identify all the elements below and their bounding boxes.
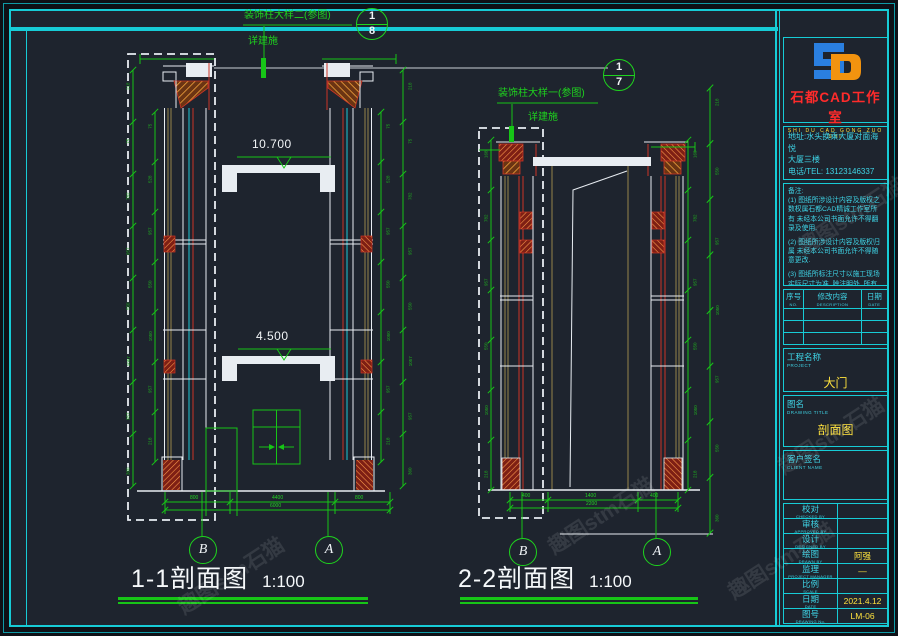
level-label-lower: 4.500	[256, 329, 289, 343]
dim-s2-mid: 1400	[585, 493, 596, 499]
drawing-label-en: DRAWING TITLE	[784, 410, 887, 415]
grid-bubble-a-s1: A	[315, 536, 343, 564]
notes-title: 备注:	[788, 187, 883, 196]
revision-header-cell: 修改内容DESCRIPTION	[804, 290, 862, 308]
dim-s1-mid: 4400	[272, 495, 283, 501]
drawing-label-zh: 图名	[784, 396, 887, 410]
signature-table: 校对CHECKED BY 审核APPROVED BY 设计DESIGNED BY…	[783, 503, 888, 624]
cad-linework	[0, 0, 898, 636]
section-2-underline2	[460, 602, 698, 604]
note-item: (2) 图纸所涉设计内容及版权归属 未经本公司书面允许不得随意更改.	[788, 238, 883, 266]
dim-chain-labels: 218757829575501057957360	[124, 84, 133, 474]
note-item: (3) 图纸所标注尺寸以施工现场实际尺寸为准, 除注明外, 所有尺寸均以毫米单位…	[788, 270, 883, 286]
titleblock-address-box: 地址:水头换乘大厦对面海悦 大厦三楼 电话/TEL: 13123146337	[783, 126, 888, 180]
drawing-title-value: 剖面图	[784, 421, 887, 438]
dim-chain-labels: 218757829575501057957360	[406, 84, 415, 474]
section-2-title: 2-2剖面图1:100	[458, 559, 632, 595]
detail-bubble-1-8: 1 8	[356, 8, 388, 40]
callout-1-sub: 详建施	[248, 32, 278, 47]
signature-row: 设计DESIGNED BY	[784, 534, 887, 549]
drawing-title-box: 图名 DRAWING TITLE 剖面图	[783, 395, 888, 447]
callout-2-sub: 详建施	[528, 108, 558, 123]
dim-chain-labels: 755289575501050957218	[384, 124, 393, 444]
client-label-en: CLIENT NAME	[784, 465, 887, 470]
revision-empty-row	[784, 333, 887, 344]
signature-row: 监理PROJECT MANAGER —	[784, 564, 887, 579]
dim-s1-right: 800	[355, 495, 363, 501]
phone-line: 电话/TEL: 13123146337	[788, 166, 883, 178]
callout-2-label: 装饰柱大样一(参图)	[498, 84, 585, 99]
dim-chain-labels: 755289575501050957218	[146, 124, 155, 444]
revision-header-row: 序号NO.修改内容DESCRIPTION日期DATE	[784, 290, 887, 309]
project-value: 大门	[784, 374, 887, 391]
signature-row: 比例SCALE	[784, 579, 887, 594]
callout-1-label: 装饰柱大样二(参图)	[244, 6, 331, 21]
note-item: (1) 图纸所涉设计内容及版权之数权属石都CAD精诚工作室所有 未经本公司书面允…	[788, 196, 883, 233]
dim-s2-right: 400	[650, 493, 658, 499]
section-1-title: 1-1剖面图1:100	[131, 559, 305, 595]
dim-s2-left: 400	[522, 493, 530, 499]
section-2-underline	[460, 597, 698, 600]
revision-header-cell: 日期DATE	[862, 290, 887, 308]
project-label-zh: 工程名称	[784, 349, 887, 363]
level-label-upper: 10.700	[252, 137, 292, 151]
project-name-box: 工程名称 PROJECT 大门	[783, 348, 888, 392]
dim-chain-labels: 1687829575501050218	[482, 152, 491, 477]
detail-bubble-1-7: 1 7	[603, 59, 635, 91]
notes-list: (1) 图纸所涉设计内容及版权之数权属石都CAD精诚工作室所有 未经本公司书面允…	[788, 196, 883, 286]
signature-row: 绘图DRAWN BY 阿强	[784, 549, 887, 564]
revision-empty-row	[784, 321, 887, 333]
revision-header-cell: 序号NO.	[784, 290, 804, 308]
signature-row: 校对CHECKED BY	[784, 504, 887, 519]
titleblock-logo-box: 石都CAD工作室 SHI DU CAD GONG ZUO SHI	[783, 37, 888, 123]
project-label-en: PROJECT	[784, 363, 887, 368]
revision-empty-row	[784, 309, 887, 321]
dim-s1-left: 800	[190, 495, 198, 501]
section-1-underline2	[118, 602, 368, 604]
signature-row: 图号DRAWING No. LM-06	[784, 609, 887, 624]
cad-sheet: 装饰柱大样二(参图) 详建施 1 8 装饰柱大样一(参图) 详建施 1 7 10…	[0, 0, 898, 636]
grid-bubble-a-s2: A	[643, 538, 671, 566]
section-1-underline	[118, 597, 368, 600]
client-label-zh: 客户签名	[784, 451, 887, 465]
dim-chain-labels: 1687829575501050218	[691, 152, 700, 477]
revision-table: 序号NO.修改内容DESCRIPTION日期DATE	[783, 289, 888, 345]
client-sign-box: 客户签名 CLIENT NAME	[783, 450, 888, 500]
dim-chain-labels: 2185509571050957550360	[713, 100, 722, 520]
dim-s2-total: 2200	[586, 501, 597, 507]
titleblock-notes-box: 备注: (1) 图纸所涉设计内容及版权之数权属石都CAD精诚工作室所有 未经本公…	[783, 183, 888, 286]
signature-row: 日期DATE 2021.4.12	[784, 594, 887, 609]
dim-s1-total: 6000	[270, 503, 281, 509]
address-line-1: 地址:水头换乘大厦对面海悦	[788, 131, 883, 154]
studio-name: 石都CAD工作室	[784, 86, 887, 126]
address-line-2: 大厦三楼	[788, 154, 883, 166]
signature-row: 审核APPROVED BY	[784, 519, 887, 534]
studio-logo	[784, 40, 887, 86]
